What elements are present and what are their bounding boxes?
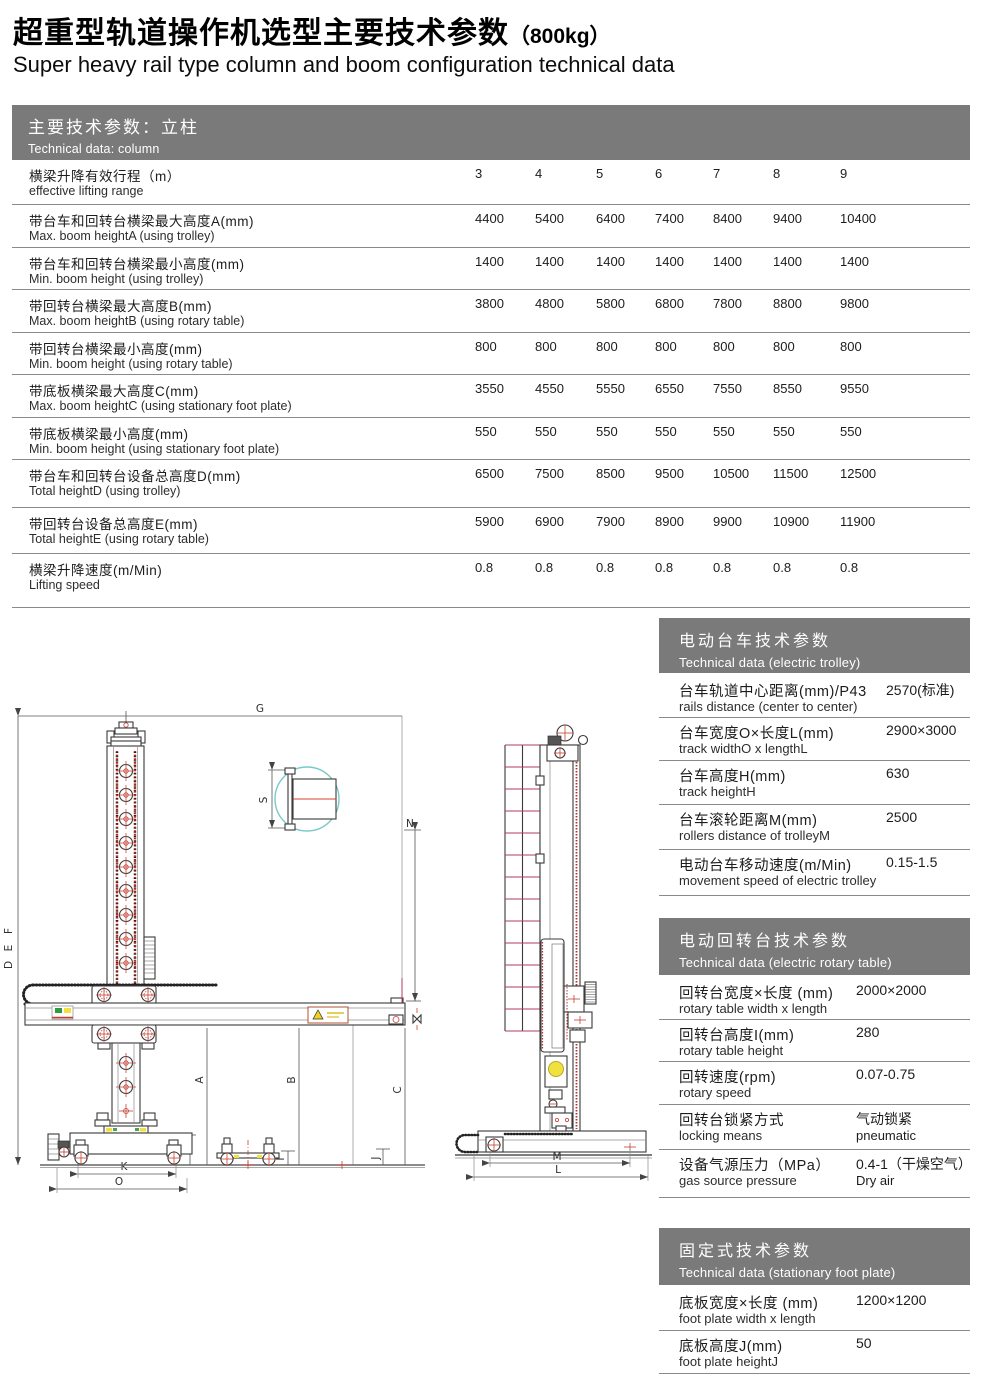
table-row: 带回转台横梁最大高度B(mm)Max. boom heightB (using … <box>12 290 970 333</box>
row-value: 2900×3000 <box>886 722 956 738</box>
cell-value: 9 <box>840 166 847 181</box>
table-row: 台车宽度O×长度L(mm)track widthO x lengthL2900×… <box>659 718 970 761</box>
row-label-zh: 底板宽度×长度 (mm) <box>679 1292 818 1313</box>
foot-table-rows: 底板宽度×长度 (mm)foot plate width x length120… <box>659 1288 970 1374</box>
row-value: 2500 <box>886 809 917 825</box>
cell-value: 0.8 <box>535 560 553 575</box>
table-row: 回转台锁紧方式locking means气动锁紧pneumatic <box>659 1105 970 1150</box>
row-value: 1200×1200 <box>856 1292 926 1308</box>
front-view <box>24 722 426 1169</box>
cell-value: 1400 <box>596 254 625 269</box>
row-label-en: effective lifting range <box>29 184 143 198</box>
table-row: 带底板横梁最大高度C(mm)Max. boom heightC (using s… <box>12 375 970 418</box>
cell-value: 550 <box>713 424 735 439</box>
row-label-zh: 底板高度J(mm) <box>679 1335 783 1356</box>
row-label-en: Total heightD (using trolley) <box>29 484 180 498</box>
cell-value: 4400 <box>475 211 504 226</box>
rotary-table-rows: 回转台宽度×长度 (mm)rotary table width x length… <box>659 978 970 1198</box>
dim-label-j: J <box>370 1156 382 1160</box>
row-label-en: Max. boom heightA (using trolley) <box>29 229 215 243</box>
row-label-en: Total heightE (using rotary table) <box>29 532 209 546</box>
table-row: 回转台高度I(mm)rotary table height280 <box>659 1020 970 1062</box>
row-value-secondary: Dry air <box>856 1173 894 1188</box>
column-table-rows: 横梁升降有效行程（m）effective lifting range345678… <box>12 160 970 608</box>
trolley-table-rows: 台车轨道中心距离(mm)/P43rails distance (center t… <box>659 676 970 896</box>
cell-value: 8900 <box>655 514 684 529</box>
row-label-zh: 横梁升降速度(m/Min) <box>29 559 162 579</box>
row-label-zh: 回转速度(rpm) <box>679 1066 776 1087</box>
page-subtitle: Super heavy rail type column and boom co… <box>13 52 675 78</box>
row-label-en: locking means <box>679 1128 762 1143</box>
row-label-zh: 带回转台横梁最小高度(mm) <box>29 338 202 358</box>
cell-value: 1400 <box>475 254 504 269</box>
row-value: 2570(标准) <box>886 680 954 700</box>
table-row: 回转台宽度×长度 (mm)rotary table width x length… <box>659 978 970 1020</box>
page-title-capacity: （800kg） <box>509 25 611 48</box>
dim-label-n: N <box>406 818 414 830</box>
cell-value: 9900 <box>713 514 742 529</box>
cell-value: 0.8 <box>713 560 731 575</box>
row-value: 630 <box>886 765 909 781</box>
cell-value: 1400 <box>773 254 802 269</box>
electric-trolley-table: 电动台车技术参数 Technical data (electric trolle… <box>659 618 970 896</box>
row-label-en: foot plate width x length <box>679 1311 816 1326</box>
cell-value: 7400 <box>655 211 684 226</box>
dim-label-b: B <box>286 1076 298 1083</box>
column-technical-table: 主要技术参数：立柱 Technical data: column 横梁升降有效行… <box>12 105 970 608</box>
row-label-en: Max. boom heightB (using rotary table) <box>29 314 244 328</box>
cell-value: 3550 <box>475 381 504 396</box>
column-table-header: 主要技术参数：立柱 Technical data: column <box>12 105 970 160</box>
rotary-table-header: 电动回转台技术参数 Technical data (electric rotar… <box>659 918 970 975</box>
dim-label-a: A <box>194 1076 206 1084</box>
cell-value: 10400 <box>840 211 876 226</box>
cell-value: 5900 <box>475 514 504 529</box>
cell-value: 550 <box>535 424 557 439</box>
cell-value: 9400 <box>773 211 802 226</box>
row-label-zh: 带底板横梁最小高度(mm) <box>29 423 188 443</box>
table-row: 台车高度H(mm)track heightH630 <box>659 761 970 805</box>
row-label-zh: 横梁升降有效行程（m） <box>29 165 181 185</box>
row-label-en: track widthO x lengthL <box>679 741 808 756</box>
row-value: 2000×2000 <box>856 982 926 998</box>
row-label-zh: 带台车和回转台横梁最小高度(mm) <box>29 253 244 273</box>
dim-label-e: E <box>3 945 15 952</box>
cell-value: 4 <box>535 166 542 181</box>
table-row: 台车轨道中心距离(mm)/P43rails distance (center t… <box>659 676 970 718</box>
row-label-zh: 带台车和回转台横梁最大高度A(mm) <box>29 210 254 230</box>
cell-value: 1400 <box>535 254 564 269</box>
cell-value: 10900 <box>773 514 809 529</box>
dim-label-d: D <box>3 961 15 969</box>
dim-label-m: M <box>552 1151 561 1163</box>
table-row: 带台车和回转台设备总高度D(mm)Total heightD (using tr… <box>12 460 970 508</box>
row-label-en: movement speed of electric trolley <box>679 873 876 888</box>
cell-value: 800 <box>535 339 557 354</box>
row-label-zh: 带回转台横梁最大高度B(mm) <box>29 295 212 315</box>
row-label-en: Min. boom height (using stationary foot … <box>29 442 279 456</box>
rotary-header-en: Technical data (electric rotary table) <box>679 955 970 970</box>
trolley-header-zh: 电动台车技术参数 <box>679 627 970 651</box>
row-label-en: Min. boom height (using rotary table) <box>29 357 233 371</box>
foot-table-header: 固定式技术参数 Technical data (stationary foot … <box>659 1228 970 1285</box>
cell-value: 550 <box>596 424 618 439</box>
table-row: 带台车和回转台横梁最小高度(mm)Min. boom height (using… <box>12 248 970 290</box>
dim-label-k: K <box>121 1161 129 1173</box>
column-table-header-en: Technical data: column <box>28 142 970 156</box>
cell-value: 800 <box>840 339 862 354</box>
table-row: 带底板横梁最小高度(mm)Min. boom height (using sta… <box>12 418 970 460</box>
row-label-zh: 带回转台设备总高度E(mm) <box>29 513 198 533</box>
rotary-table-table: 电动回转台技术参数 Technical data (electric rotar… <box>659 918 970 1198</box>
cell-value: 5800 <box>596 296 625 311</box>
row-label-en: gas source pressure <box>679 1173 797 1188</box>
dimension-lines: G F E D N A B C H K O I <box>3 703 421 1193</box>
row-label-zh: 带底板横梁最大高度C(mm) <box>29 380 199 400</box>
cell-value: 1400 <box>655 254 684 269</box>
dim-label-g: G <box>256 703 264 715</box>
cell-value: 8550 <box>773 381 802 396</box>
row-label-zh: 设备气源压力（MPa） <box>679 1154 830 1175</box>
cell-value: 6500 <box>475 466 504 481</box>
cell-value: 3800 <box>475 296 504 311</box>
row-label-en: rails distance (center to center) <box>679 699 857 714</box>
cell-value: 10500 <box>713 466 749 481</box>
table-row: 电动台车移动速度(m/Min)movement speed of electri… <box>659 850 970 896</box>
table-row: 横梁升降速度(m/Min)Lifting speed0.80.80.80.80.… <box>12 554 970 608</box>
cell-value: 550 <box>475 424 497 439</box>
cell-value: 800 <box>713 339 735 354</box>
technical-drawing: G F E D N A B C H K O I <box>0 700 660 1200</box>
trolley-table-header: 电动台车技术参数 Technical data (electric trolle… <box>659 618 970 673</box>
dim-label-f: F <box>3 928 15 934</box>
row-value: 0.07-0.75 <box>856 1066 915 1082</box>
row-value: 0.15-1.5 <box>886 854 937 870</box>
cell-value: 7800 <box>713 296 742 311</box>
table-row: 底板高度J(mm)foot plate heightJ50 <box>659 1331 970 1374</box>
cell-value: 800 <box>773 339 795 354</box>
cell-value: 5400 <box>535 211 564 226</box>
dim-label-s: S <box>258 796 270 803</box>
cell-value: 9550 <box>840 381 869 396</box>
cell-value: 800 <box>655 339 677 354</box>
row-label-zh: 回转台高度I(mm) <box>679 1024 794 1045</box>
cell-value: 6 <box>655 166 662 181</box>
cell-value: 550 <box>840 424 862 439</box>
row-label-zh: 回转台锁紧方式 <box>679 1109 784 1130</box>
cell-value: 0.8 <box>840 560 858 575</box>
table-row: 带回转台设备总高度E(mm)Total heightE (using rotar… <box>12 508 970 554</box>
cell-value: 9500 <box>655 466 684 481</box>
row-value: 50 <box>856 1335 872 1351</box>
cell-value: 6550 <box>655 381 684 396</box>
table-row: 带回转台横梁最小高度(mm)Min. boom height (using ro… <box>12 333 970 375</box>
cell-value: 550 <box>655 424 677 439</box>
cell-value: 11900 <box>840 514 875 529</box>
cell-value: 5 <box>596 166 603 181</box>
side-view: M L <box>455 725 652 1181</box>
cell-value: 0.8 <box>655 560 673 575</box>
cell-value: 0.8 <box>773 560 791 575</box>
row-label-en: rotary table height <box>679 1043 783 1058</box>
table-row: 带台车和回转台横梁最大高度A(mm)Max. boom heightA (usi… <box>12 205 970 248</box>
trolley-header-en: Technical data (electric trolley) <box>679 655 970 670</box>
cell-value: 4550 <box>535 381 564 396</box>
row-label-en: track heightH <box>679 784 756 799</box>
cell-value: 550 <box>773 424 795 439</box>
row-value: 280 <box>856 1024 879 1040</box>
cell-value: 1400 <box>840 254 869 269</box>
page-title: 超重型轨道操作机选型主要技术参数（800kg） <box>13 8 611 52</box>
cell-value: 6400 <box>596 211 625 226</box>
column-table-header-zh: 主要技术参数：立柱 <box>28 113 970 138</box>
stationary-foot-plate-table: 固定式技术参数 Technical data (stationary foot … <box>659 1228 970 1374</box>
dim-label-l: L <box>555 1164 561 1176</box>
row-label-en: foot plate heightJ <box>679 1354 778 1369</box>
row-value: 0.4-1（干燥空气） <box>856 1154 972 1174</box>
cell-value: 8800 <box>773 296 802 311</box>
row-label-zh: 台车高度H(mm) <box>679 765 786 786</box>
cell-value: 9800 <box>840 296 869 311</box>
page-title-main: 超重型轨道操作机选型主要技术参数 <box>13 17 509 50</box>
cell-value: 11500 <box>773 466 808 481</box>
table-row: 回转速度(rpm)rotary speed0.07-0.75 <box>659 1062 970 1105</box>
cell-value: 12500 <box>840 466 876 481</box>
cell-value: 6900 <box>535 514 564 529</box>
cell-value: 8400 <box>713 211 742 226</box>
row-label-zh: 电动台车移动速度(m/Min) <box>679 854 852 875</box>
cell-value: 0.8 <box>475 560 493 575</box>
row-label-en: rotary table width x length <box>679 1001 827 1016</box>
cell-value: 8500 <box>596 466 625 481</box>
cell-value: 0.8 <box>596 560 614 575</box>
row-value-secondary: pneumatic <box>856 1128 916 1143</box>
cell-value: 1400 <box>713 254 742 269</box>
cell-value: 800 <box>596 339 618 354</box>
table-row: 底板宽度×长度 (mm)foot plate width x length120… <box>659 1288 970 1331</box>
cell-value: 800 <box>475 339 497 354</box>
cell-value: 7 <box>713 166 720 181</box>
cell-value: 5550 <box>596 381 625 396</box>
row-label-en: Min. boom height (using trolley) <box>29 272 203 286</box>
cell-value: 7550 <box>713 381 742 396</box>
foot-header-zh: 固定式技术参数 <box>679 1237 970 1261</box>
row-label-en: Lifting speed <box>29 578 100 592</box>
cell-value: 8 <box>773 166 780 181</box>
table-row: 设备气源压力（MPa）gas source pressure0.4-1（干燥空气… <box>659 1150 970 1198</box>
dim-label-c: C <box>392 1086 404 1093</box>
row-label-en: Max. boom heightC (using stationary foot… <box>29 399 292 413</box>
row-label-en: rotary speed <box>679 1085 751 1100</box>
cell-value: 7900 <box>596 514 625 529</box>
cell-value: 7500 <box>535 466 564 481</box>
cell-value: 4800 <box>535 296 564 311</box>
foot-header-en: Technical data (stationary foot plate) <box>679 1265 970 1280</box>
dim-label-o: O <box>115 1176 123 1188</box>
row-value: 气动锁紧 <box>856 1109 912 1129</box>
row-label-zh: 台车滚轮距离M(mm) <box>679 809 817 830</box>
rotary-header-zh: 电动回转台技术参数 <box>679 927 970 951</box>
cell-value: 3 <box>475 166 482 181</box>
row-label-en: rollers distance of trolleyM <box>679 828 830 843</box>
row-label-zh: 台车宽度O×长度L(mm) <box>679 722 834 743</box>
cell-value: 6800 <box>655 296 684 311</box>
row-label-zh: 台车轨道中心距离(mm)/P43 <box>679 680 867 701</box>
row-label-zh: 带台车和回转台设备总高度D(mm) <box>29 465 241 485</box>
table-row: 台车滚轮距离M(mm)rollers distance of trolleyM2… <box>659 805 970 850</box>
row-label-zh: 回转台宽度×长度 (mm) <box>679 982 833 1003</box>
table-row: 横梁升降有效行程（m）effective lifting range345678… <box>12 160 970 205</box>
